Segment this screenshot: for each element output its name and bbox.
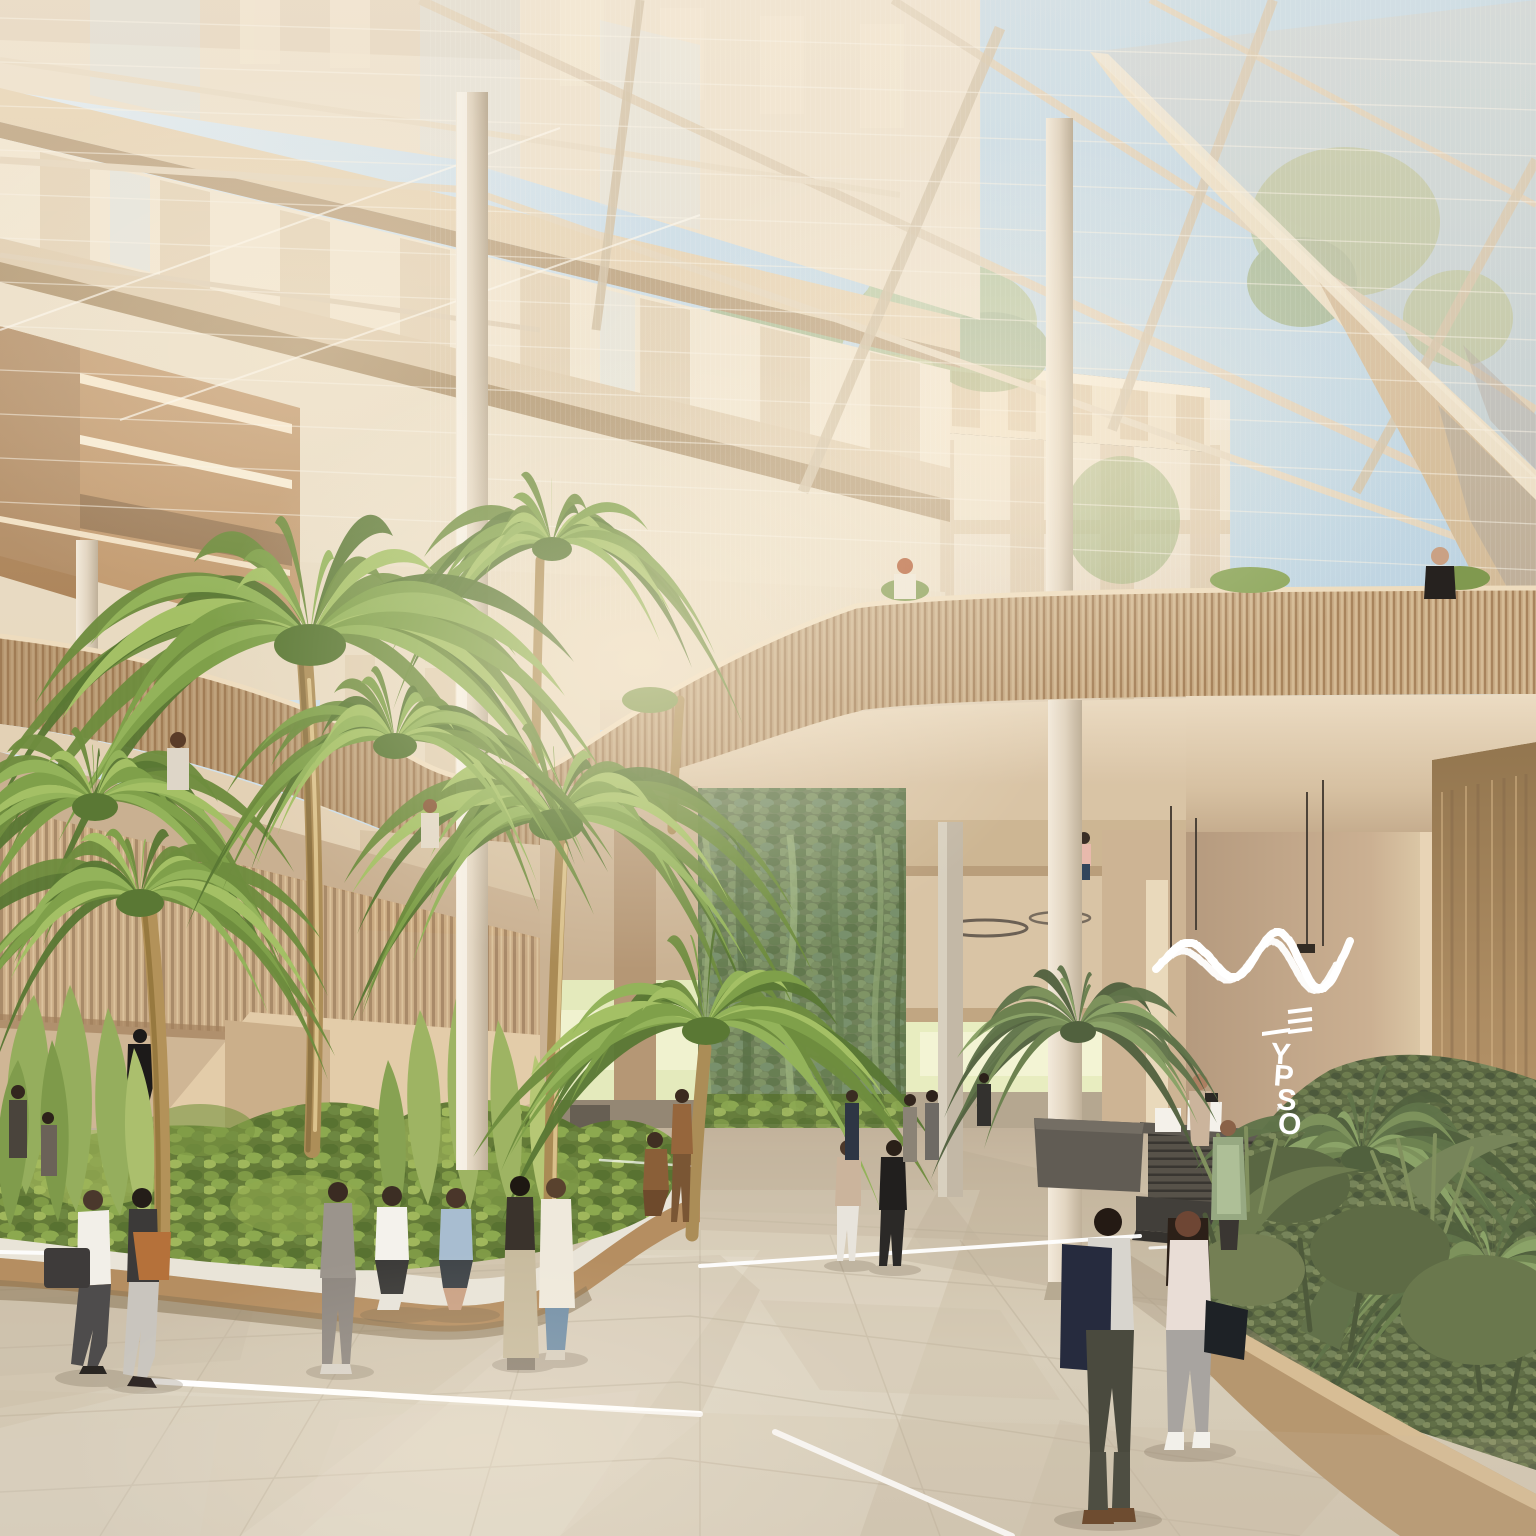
svg-text:O: O [1277, 1107, 1303, 1142]
